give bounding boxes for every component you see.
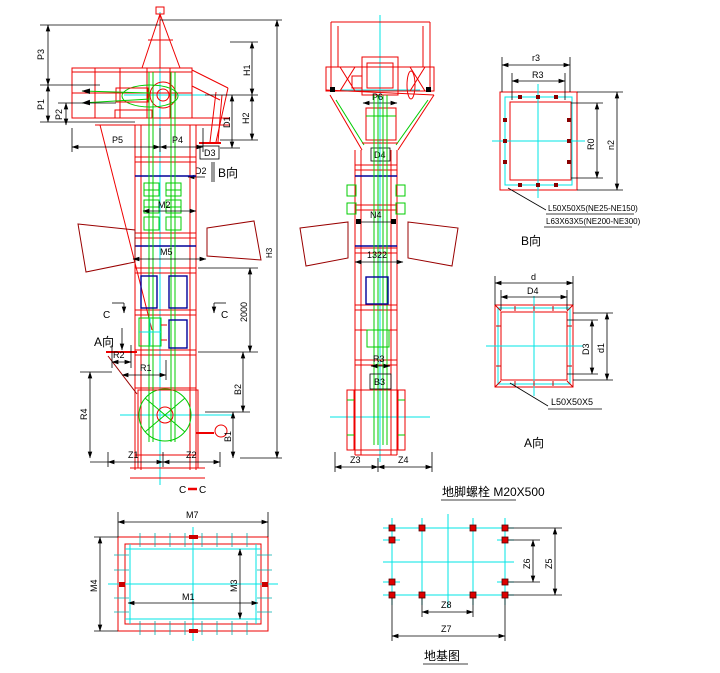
dim-z4: Z4 xyxy=(398,455,409,465)
dim-a-d1: d1 xyxy=(596,343,606,353)
detail-b-view: r3 R3 R0 n2 L50X50X5(NE25-NE150) L63X63X… xyxy=(492,53,641,248)
dim-r2: R2 xyxy=(113,350,125,360)
dim-n4: N4 xyxy=(370,210,382,220)
detail-a-title: A向 xyxy=(524,435,544,450)
dim-b-r3-outer: r3 xyxy=(532,53,540,63)
dim-p1: P1 xyxy=(36,99,46,110)
side-view: P6 D4 xyxy=(300,15,458,472)
chain-and-buckets xyxy=(144,72,181,442)
detail-a-view: d D4 D3 d1 L50X50X5 A向 xyxy=(486,272,613,450)
dim-m1: M1 xyxy=(182,592,195,602)
dim-a-d3: D3 xyxy=(581,343,591,355)
section-cc-title: C C xyxy=(179,485,206,496)
boot-section xyxy=(130,389,227,478)
section-c-right: C xyxy=(221,310,228,321)
dim-z5: Z5 xyxy=(544,558,554,569)
side-d4-label: D4 xyxy=(374,150,386,160)
dim-z3: Z3 xyxy=(350,455,361,465)
front-b-dir-label: B向 xyxy=(218,165,238,180)
foundation-grid xyxy=(383,514,514,608)
dim-r4: R4 xyxy=(79,408,89,420)
dim-m2: M2 xyxy=(158,200,171,210)
foundation-title-text: 地基图 xyxy=(424,649,460,663)
section-cc-c2: C xyxy=(199,485,206,496)
foundation-dims: Z6 Z5 Z8 Z7 xyxy=(392,528,562,641)
section-cc-view: C C M7 M4 M3 M1 xyxy=(89,485,278,641)
detail-b-title: B向 xyxy=(521,233,541,248)
section-c-left: C xyxy=(103,310,110,321)
dim-b-r3-inner: R3 xyxy=(532,70,544,80)
dim-p4: P4 xyxy=(172,135,183,145)
front-windows xyxy=(139,276,187,348)
dim-p3: P3 xyxy=(36,49,46,60)
dim-h1: H1 xyxy=(242,64,252,76)
front-d3-label: D3 xyxy=(204,148,216,158)
dim-p2: P2 xyxy=(54,109,64,120)
section-cc-dims: M7 M4 M3 M1 xyxy=(89,510,268,631)
head-frame xyxy=(72,68,230,142)
detail-a-note-text: L50X50X5 xyxy=(551,397,593,407)
side-hopper: D4 xyxy=(330,95,434,161)
side-dims: N4 1322 R3 B3 xyxy=(355,210,403,389)
dim-b1: B1 xyxy=(223,431,233,442)
dim-h2: H2 xyxy=(241,112,251,124)
dim-z7: Z7 xyxy=(441,624,452,634)
front-d2-label: D2 xyxy=(195,166,207,176)
dim-2000: 2000 xyxy=(239,302,249,322)
cad-drawing-bucket-elevator: { "front_view": { "p3": "P3", "p1": "P1"… xyxy=(0,0,720,673)
dim-z1: Z1 xyxy=(128,450,139,460)
dim-d1: D1 xyxy=(222,116,232,128)
detail-b-dims: r3 R3 R0 n2 xyxy=(502,53,623,190)
foundation-bolt-note-text: 地脚螺栓 M20X500 xyxy=(442,484,545,499)
dim-m3: M3 xyxy=(229,579,239,592)
a-direction-label: A向 xyxy=(94,334,114,349)
lifting-derrick xyxy=(142,7,180,68)
dim-p5: P5 xyxy=(112,135,123,145)
front-casing xyxy=(100,125,196,470)
dim-total-height: H3 xyxy=(265,247,274,258)
dim-r1: R1 xyxy=(140,363,152,373)
detail-b-note-line1: L50X50X5(NE25-NE150) xyxy=(548,204,638,213)
detail-b-note-line2: L63X63X5(NE200-NE300) xyxy=(546,217,641,226)
dim-1322: 1322 xyxy=(367,250,387,260)
foundation-title: 地基图 xyxy=(423,649,468,664)
dim-a-d: d xyxy=(531,272,536,282)
dim-b2: B2 xyxy=(233,384,243,395)
dim-r3: R3 xyxy=(373,354,385,364)
dim-z6: Z6 xyxy=(522,558,532,569)
foundation-plan: 地脚螺栓 M20X500 Z6 Z5 Z8 xyxy=(383,484,562,664)
foundation-bolt-note: 地脚螺栓 M20X500 xyxy=(441,484,545,500)
side-casing xyxy=(347,95,405,455)
detail-b-note: L50X50X5(NE25-NE150) L63X63X5(NE200-NE30… xyxy=(508,188,641,227)
dim-m4: M4 xyxy=(89,579,99,592)
dim-b-r0: R0 xyxy=(586,138,596,150)
dim-z2: Z2 xyxy=(186,450,197,460)
dim-b-n2: n2 xyxy=(606,140,616,150)
side-boot xyxy=(347,390,405,455)
side-b3-label: B3 xyxy=(374,377,385,387)
front-centerlines xyxy=(120,12,232,485)
dim-m7: M7 xyxy=(186,510,199,520)
dim-z8: Z8 xyxy=(441,600,452,610)
front-view: D3 D2 B向 xyxy=(36,7,282,485)
side-p6-dim: P6 xyxy=(363,92,397,103)
detail-a-dims: d D4 D3 d1 xyxy=(495,272,613,380)
dim-a-d4: D4 xyxy=(527,286,539,296)
dim-m5: M5 xyxy=(160,247,173,257)
section-cc-c1: C xyxy=(179,485,186,496)
